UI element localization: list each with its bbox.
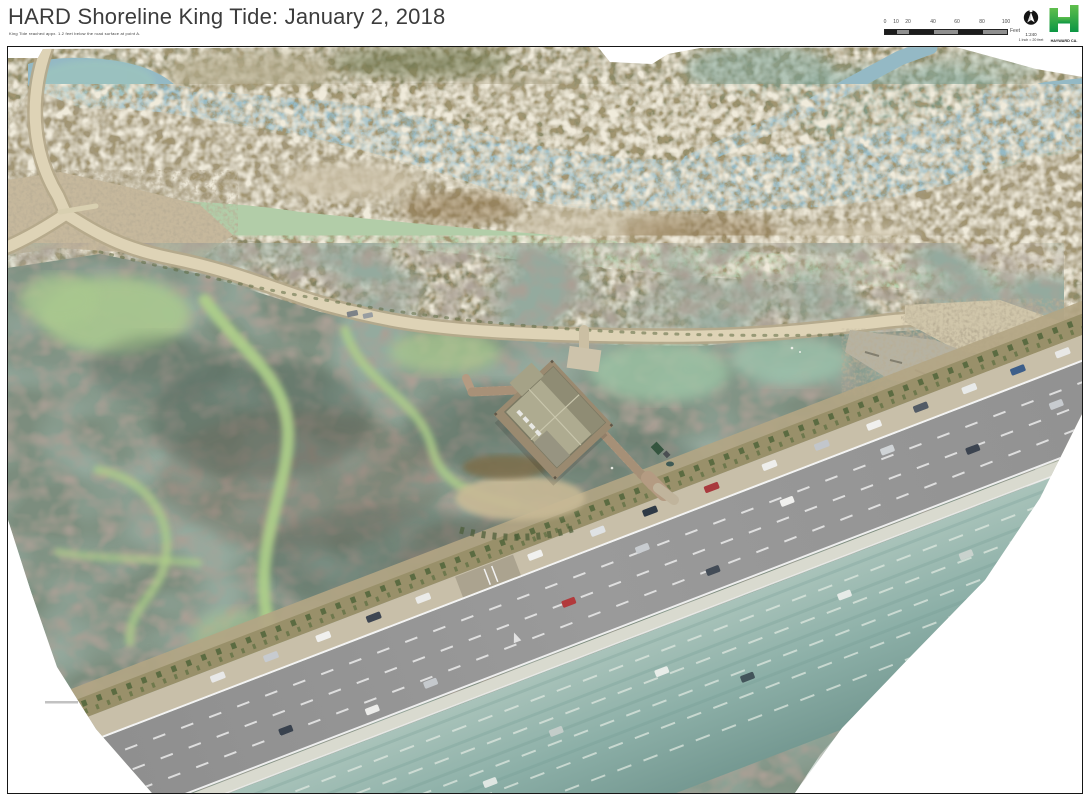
pier-plaza — [567, 346, 602, 372]
scale-equivalence: 1 inch = 20 feet — [1016, 38, 1046, 42]
map-document-page: HARD Shoreline King Tide: January 2, 201… — [0, 0, 1090, 808]
scale-bar: 0 10 20 40 60 80 100 Feet — [884, 19, 1034, 37]
scale-note: 1:240 1 inch = 20 feet — [1016, 9, 1046, 42]
page-subtitle: King Tide reached appx. 1.2 feet below t… — [9, 31, 140, 36]
scale-ratio: 1:240 — [1016, 32, 1046, 37]
scale-tick-label: 60 — [954, 19, 960, 25]
hayward-logo: HAYWARD CA. — [1046, 5, 1082, 43]
scale-bar-graphic — [884, 29, 1008, 35]
north-arrow-icon — [1023, 9, 1039, 26]
scale-bar-segment — [885, 30, 897, 34]
hayward-logo-text: HAYWARD CA. — [1046, 39, 1082, 43]
page-title: HARD Shoreline King Tide: January 2, 201… — [8, 4, 445, 30]
stray-gray-mark — [45, 701, 78, 704]
boat — [666, 462, 674, 467]
scale-tick-label: 0 — [884, 19, 887, 25]
scale-bar-segment — [983, 30, 1007, 34]
scale-bar-segment — [909, 30, 934, 34]
aerial-orthomosaic — [8, 47, 1082, 793]
scale-tick-label: 80 — [979, 19, 985, 25]
scale-tick-label: 10 — [893, 19, 899, 25]
scale-bar-segment — [958, 30, 983, 34]
scale-tick-label: 100 — [1002, 19, 1010, 25]
scale-bar-segment — [934, 30, 958, 34]
map-frame — [7, 46, 1083, 794]
beach-sand — [455, 476, 585, 520]
scale-bar-segment — [897, 30, 909, 34]
scale-tick-label: 20 — [905, 19, 911, 25]
scale-tick-label: 40 — [930, 19, 936, 25]
hayward-h-icon — [1049, 5, 1079, 33]
